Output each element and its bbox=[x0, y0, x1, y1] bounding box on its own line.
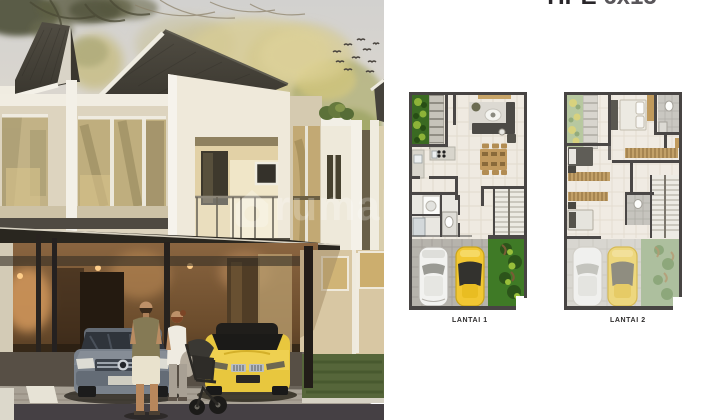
svg-text:TIPE 6x15: TIPE 6x15 bbox=[543, 0, 656, 5]
